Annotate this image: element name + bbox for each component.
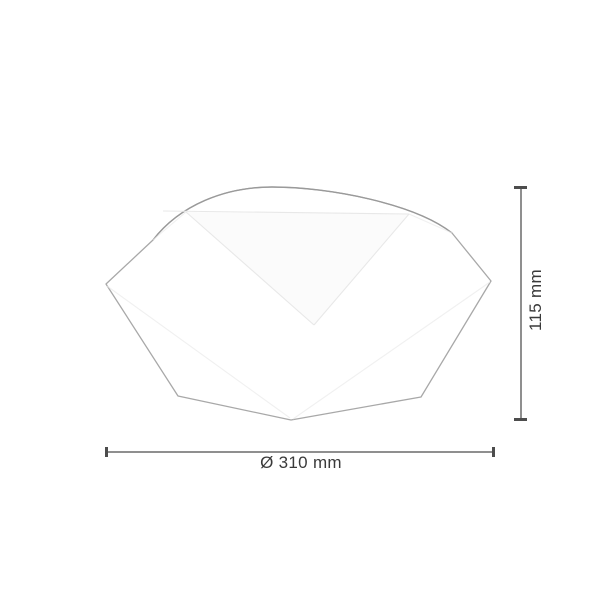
- ceiling-lamp-illustration: [0, 0, 600, 600]
- drawing-canvas: 115 mm Ø 310 mm: [0, 0, 600, 600]
- height-dimension-line: [520, 188, 522, 420]
- height-dimension-tick-top: [514, 186, 527, 189]
- diameter-dimension-label: Ø 310 mm: [201, 453, 401, 473]
- height-dimension-tick-bottom: [514, 418, 527, 421]
- diameter-dimension-tick-right: [492, 447, 495, 457]
- height-dimension-label: 115 mm: [527, 220, 545, 380]
- diameter-dimension-tick-left: [105, 447, 108, 457]
